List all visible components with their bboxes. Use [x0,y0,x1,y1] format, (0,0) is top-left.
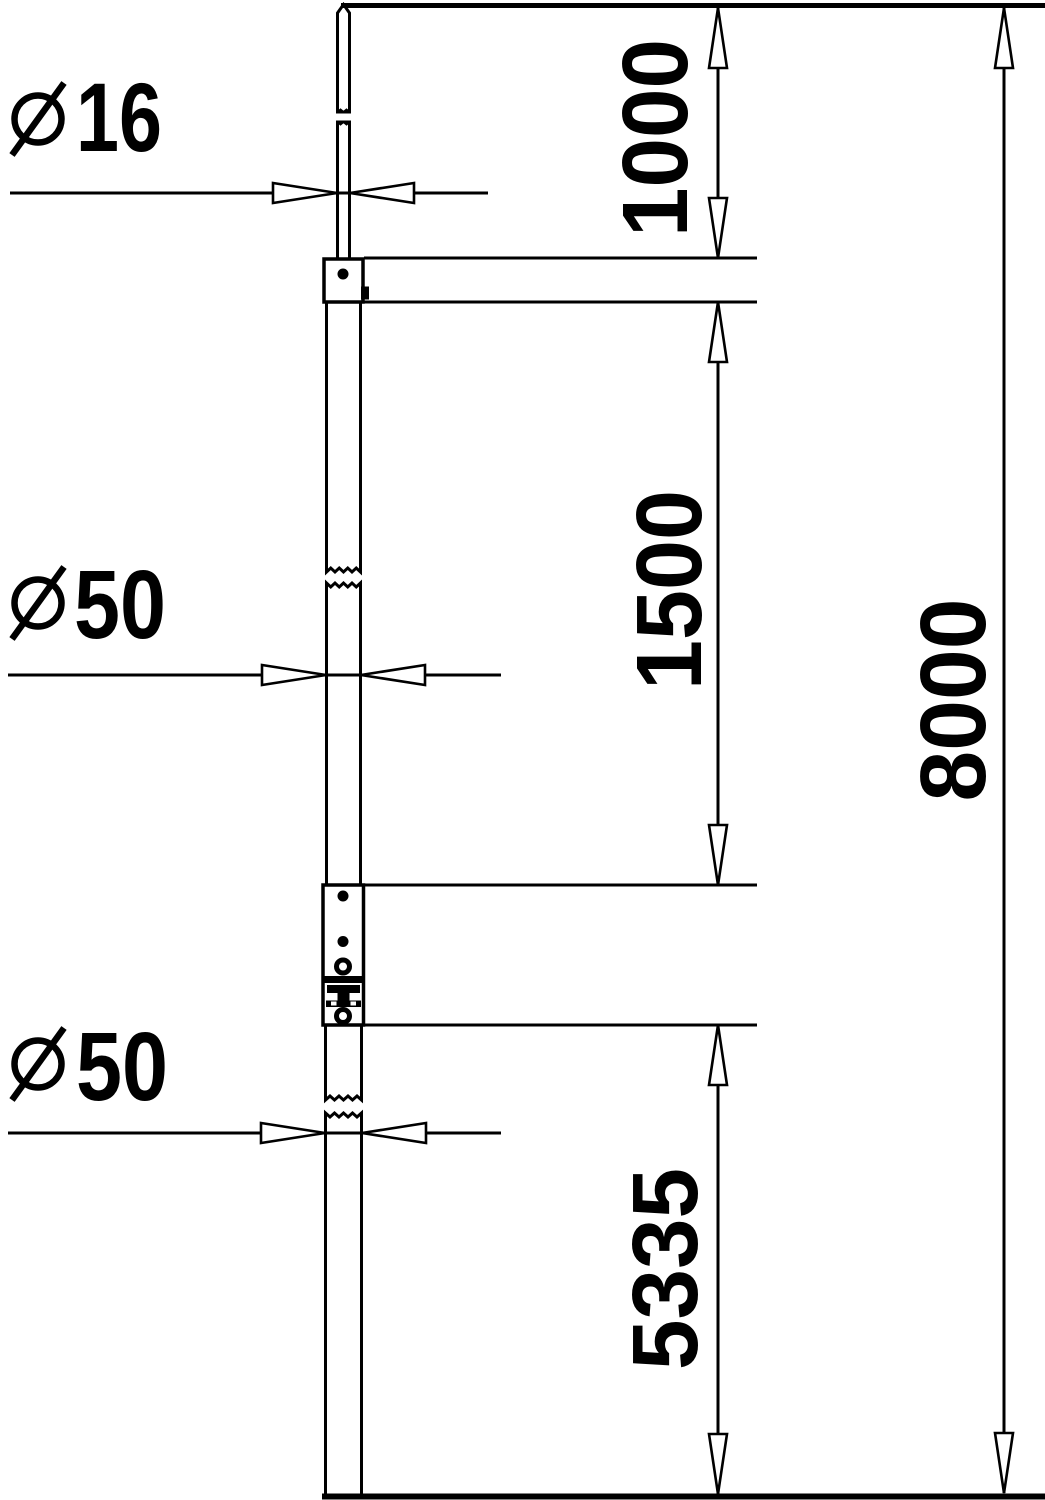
arrow-left-dia50-lower-icon [362,1123,426,1143]
dia-label-upper-tube: 50 [12,550,166,659]
diameter-icon [12,567,64,639]
arrow-down-8000-icon [995,1433,1013,1493]
diameter-icon [12,83,64,155]
arrow-down-5335-icon [709,1434,727,1494]
middle-coupling-bolt-dot-1 [338,891,349,902]
diameter-icon [12,1028,64,1100]
clamp-foot-notch-left [331,1002,337,1006]
middle-coupling-bolt-dot-2 [338,936,349,947]
technical-drawing-page: 16 50 50 1000 1500 5335 8000 [0,0,1045,1500]
arrow-right-dia50-lower-icon [261,1123,325,1143]
dia-label-lower-tube: 50 [12,1012,168,1121]
clamp-foot-notch-right [351,1002,357,1006]
arrow-left-dia16-icon [350,183,414,203]
clamp-flange [327,985,360,993]
dia-value-upper-tube: 50 [74,550,166,659]
middle-coupling-hole-ring-2 [337,1010,350,1023]
dim-value-1000: 1000 [603,39,707,237]
arrow-up-1500-icon [709,302,727,362]
top-coupling-bolt-dot [338,269,349,280]
dia-value-rod: 16 [76,63,162,172]
arrow-down-1000-icon [709,198,727,258]
dia-label-rod: 16 [12,63,162,172]
air-rod-upper-segment [338,5,350,113]
dim-value-1500: 1500 [617,490,721,690]
top-coupling-side-tab [361,287,369,300]
upper-tube-segment-1 [327,302,361,572]
upper-tube-segment-2 [327,583,361,885]
arrow-down-1500-icon [709,825,727,885]
clamp-detail-icon [323,976,364,1007]
mast-dimension-drawing: 16 50 50 1000 1500 5335 8000 [0,0,1045,1500]
clamp-top-bar [323,976,364,983]
dim-value-5335: 5335 [613,1168,717,1370]
arrow-up-1000-icon [709,8,727,68]
top-coupling-sleeve [324,259,363,302]
arrow-up-5335-icon [709,1025,727,1085]
dim-value-8000: 8000 [901,599,1005,802]
arrow-right-dia16-icon [273,183,337,203]
lower-tube-segment-1 [326,1025,362,1100]
dia-value-lower-tube: 50 [76,1012,168,1121]
arrow-right-dia50-upper-icon [262,665,326,685]
arrow-up-8000-icon [995,8,1013,68]
middle-coupling-hole-ring-1 [337,960,350,973]
arrow-left-dia50-upper-icon [361,665,425,685]
clamp-stem [338,992,350,1001]
lower-tube-segment-2 [326,1113,362,1496]
